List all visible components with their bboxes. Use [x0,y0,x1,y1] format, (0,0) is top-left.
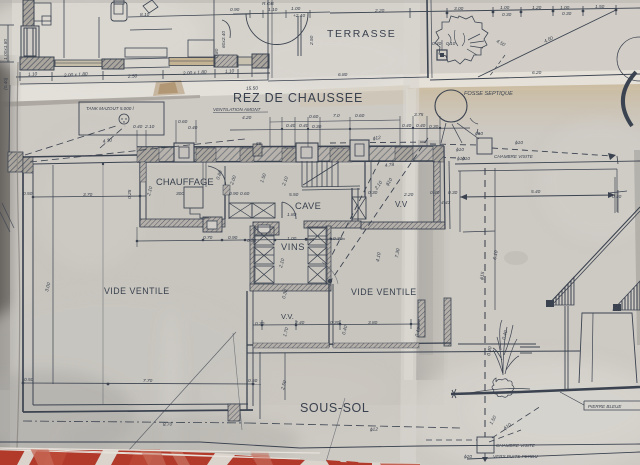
svg-text:0.40: 0.40 [133,124,143,130]
svg-text:6.20: 6.20 [532,70,542,76]
svg-text:7.70: 7.70 [143,378,153,384]
svg-text:V.V.: V.V. [281,312,294,321]
svg-text:15.50: 15.50 [246,86,259,92]
svg-text:5.40: 5.40 [531,189,541,195]
svg-text:0.40: 0.40 [286,123,296,129]
svg-text:0.30: 0.30 [429,124,439,130]
svg-text:FOSSE SEPTIQUE: FOSSE SEPTIQUE [464,91,513,97]
svg-text:1.00: 1.00 [500,5,510,11]
svg-text:0.90: 0.90 [228,235,238,241]
svg-text:1.10: 1.10 [268,7,278,13]
svg-text:2.40: 2.40 [294,320,305,326]
svg-text:2.10: 2.10 [144,124,155,130]
svg-text:5.50: 5.50 [289,192,299,198]
svg-text:1.20: 1.20 [532,5,542,11]
svg-text:0.40: 0.40 [416,123,426,129]
svg-text:1.10: 1.10 [225,68,235,75]
svg-text:TANK MAZOUT 5.000 l: TANK MAZOUT 5.000 l [86,106,135,111]
svg-text:0.40: 0.40 [188,125,198,131]
svg-text:0.40: 0.40 [402,123,412,129]
svg-text:0.60: 0.60 [178,119,188,125]
svg-text:0.70: 0.70 [203,235,213,241]
svg-text:0.40: 0.40 [612,194,622,200]
svg-text:(0.40): (0.40) [3,77,9,90]
svg-text:+2.40: +2.40 [293,13,305,19]
svg-text:CAVE: CAVE [295,201,321,211]
svg-text:0.30: 0.30 [448,190,458,196]
svg-text:0.25: 0.25 [127,189,133,199]
svg-text:0.30: 0.30 [502,12,512,18]
svg-text:V.V: V.V [395,200,408,209]
svg-text:ϕ20: ϕ20 [464,454,472,460]
svg-text:0.40: 0.40 [299,123,309,129]
svg-text:0.50: 0.50 [248,378,258,384]
svg-text:0.40: 0.40 [432,41,442,47]
svg-text:2.50: 2.50 [309,35,315,46]
svg-text:3.70: 3.70 [83,192,93,198]
svg-text:SOUS-SOL: SOUS-SOL [300,401,369,415]
svg-text:68: 68 [256,141,262,147]
svg-text:1.00: 1.00 [291,6,301,12]
svg-text:0.10: 0.10 [446,41,456,47]
svg-text:0.40: 0.40 [430,190,440,196]
svg-text:0.90: 0.90 [305,237,315,243]
svg-text:0.30: 0.30 [247,238,257,244]
svg-text:0.80: 0.80 [214,48,220,58]
svg-text:0.50: 0.50 [24,377,34,383]
svg-text:VIDE VENTILE: VIDE VENTILE [104,286,170,296]
svg-text:1.00: 1.00 [560,5,570,11]
svg-text:VIDE VENTILE: VIDE VENTILE [351,287,417,297]
svg-text:CHAMBRE VISITE: CHAMBRE VISITE [496,443,536,448]
svg-text:8.70: 8.70 [163,421,173,427]
svg-text:1.00: 1.00 [287,236,297,242]
svg-text:CHAMBRE VISITE: CHAMBRE VISITE [494,154,534,159]
svg-text:0.50: 0.50 [23,191,33,197]
svg-text:7.0: 7.0 [333,113,340,119]
svg-text:1.00x1.80: 1.00x1.80 [3,39,9,60]
svg-text:1.50: 1.50 [595,4,605,10]
svg-text:TERRASSE: TERRASSE [327,28,396,40]
svg-text:3.75: 3.75 [414,112,424,118]
svg-text:3.80: 3.80 [368,320,378,326]
svg-text:0.60: 0.60 [309,114,319,120]
svg-text:2.20: 2.20 [403,192,414,198]
svg-text:0.30: 0.30 [255,321,265,327]
svg-text:VENTILATION AMONT: VENTILATION AMONT [213,107,262,112]
svg-text:0.30: 0.30 [333,236,343,242]
svg-text:0.90: 0.90 [229,191,239,197]
svg-text:2.50: 2.50 [127,73,138,80]
svg-text:VINS: VINS [281,242,305,252]
svg-text:0.90: 0.90 [230,7,240,13]
svg-text:ϕ12: ϕ12 [370,427,379,433]
svg-text:ϕ10: ϕ10 [475,131,483,137]
svg-text:0.60: 0.60 [240,191,250,197]
svg-text:VERS PUITS PERDU: VERS PUITS PERDU [493,454,538,459]
svg-text:ϕ10: ϕ10 [457,156,465,162]
svg-text:4.20: 4.20 [242,115,252,121]
svg-text:0.30: 0.30 [330,320,340,326]
svg-text:0.30: 0.30 [562,11,572,17]
svg-text:8.10: 8.10 [140,12,150,18]
svg-text:REZ DE CHAUSSEE: REZ DE CHAUSSEE [233,91,363,105]
svg-text:0.60: 0.60 [355,113,365,119]
svg-text:300: 300 [176,191,184,197]
svg-text:1.10: 1.10 [28,71,38,78]
svg-text:3.00: 3.00 [454,6,464,12]
svg-text:60x2.40: 60x2.40 [221,31,227,48]
svg-text:ϕ10: ϕ10 [456,147,464,153]
svg-text:2.20: 2.20 [374,8,385,14]
svg-text:PIERRE BLEUE: PIERRE BLEUE [588,404,622,409]
svg-text:0.30: 0.30 [312,124,322,130]
svg-text:6.80: 6.80 [338,72,348,78]
svg-text:CHAUFFAGE: CHAUFFAGE [156,177,214,187]
svg-text:ϕ12: ϕ12 [372,135,381,142]
svg-text:4.43: 4.43 [441,200,451,206]
svg-text:R.OB: R.OB [262,1,275,7]
svg-text:1.80: 1.80 [287,212,297,218]
svg-text:0.30: 0.30 [368,190,378,196]
svg-text:ϕ10: ϕ10 [515,140,523,146]
